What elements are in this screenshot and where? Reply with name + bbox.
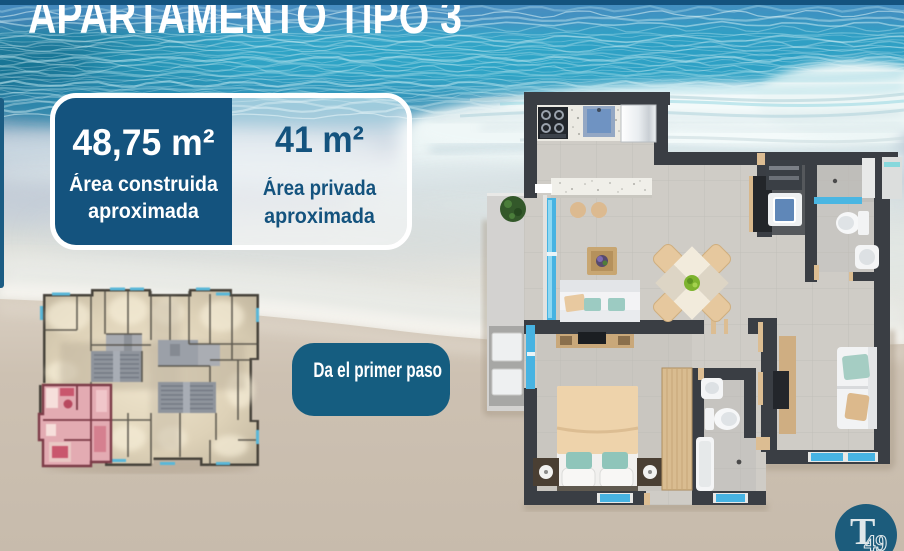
svg-text:49: 49 <box>864 531 887 551</box>
